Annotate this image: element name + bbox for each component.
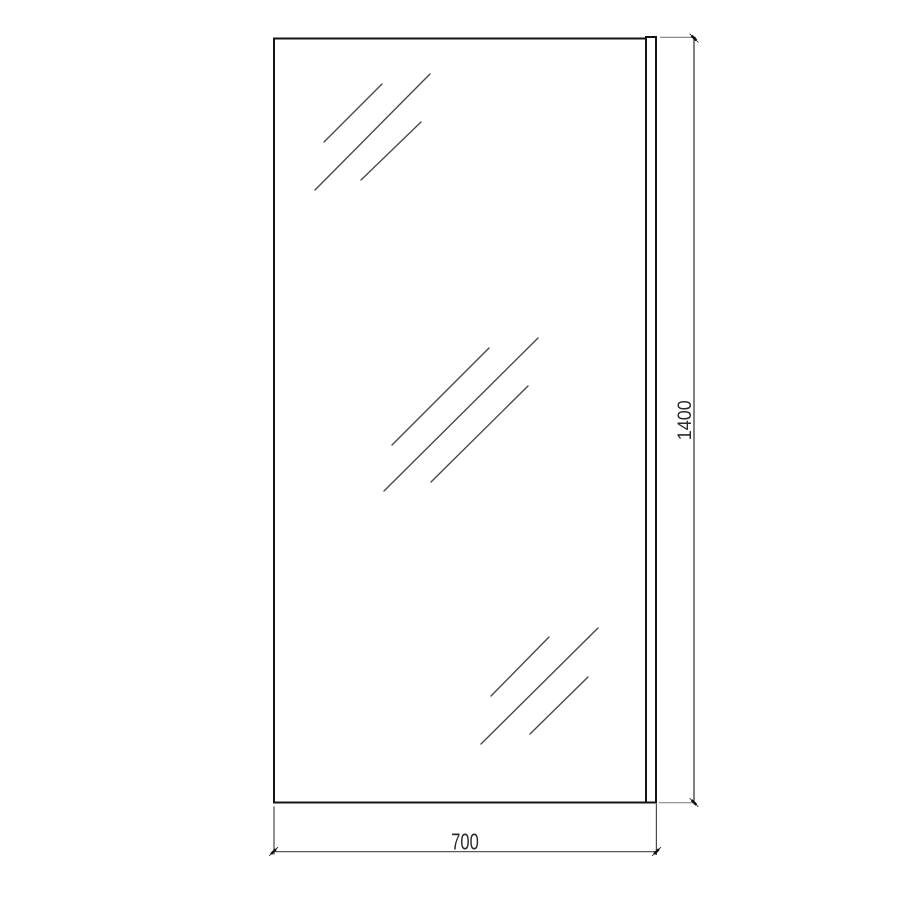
svg-text:1400: 1400 xyxy=(675,400,696,440)
svg-text:700: 700 xyxy=(451,829,479,855)
